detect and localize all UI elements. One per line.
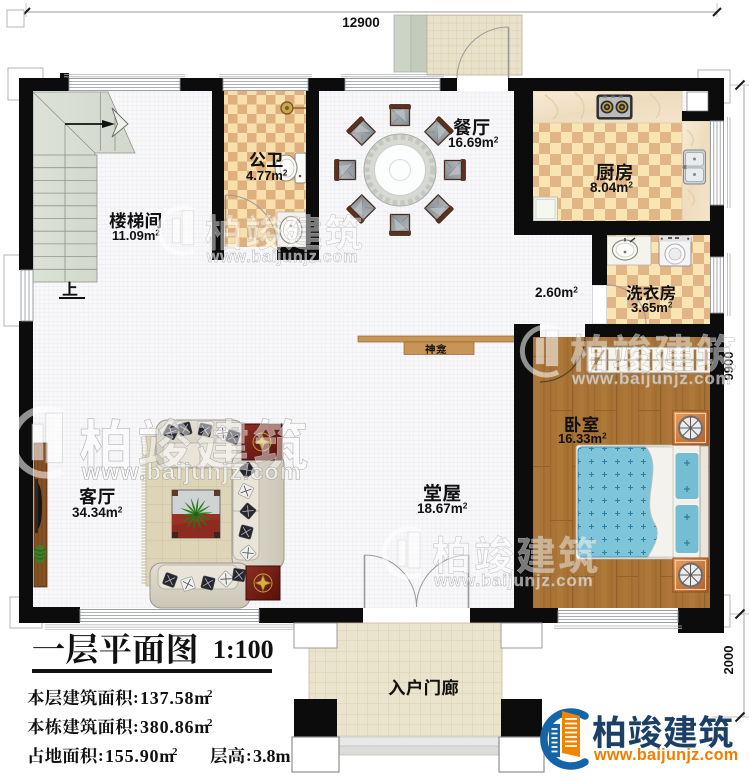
svg-text:2: 2 [207,688,213,700]
svg-text::: : [133,717,139,736]
svg-text:16.69m2: 16.69m2 [448,134,499,150]
svg-text:34.34m2: 34.34m2 [72,504,123,520]
svg-text::: : [246,746,252,765]
svg-text:18.67m2: 18.67m2 [417,500,468,516]
svg-text:11.09m2: 11.09m2 [112,228,160,243]
svg-text:1:100: 1:100 [213,635,274,664]
svg-text:137.58m: 137.58m [140,688,210,708]
svg-text:www.baijunjz.com: www.baijunjz.com [571,369,732,388]
svg-text:380.86m: 380.86m [140,717,210,737]
svg-text:www.baijunjz.com: www.baijunjz.com [81,458,302,484]
svg-text:www.baijunjz.com: www.baijunjz.com [593,746,739,764]
svg-text:2: 2 [207,717,213,729]
svg-text:8.04m2: 8.04m2 [590,179,633,195]
svg-text:2: 2 [172,746,178,758]
svg-text:www.baijunjz.com: www.baijunjz.com [433,571,594,590]
svg-text:16.33m2: 16.33m2 [558,431,607,446]
svg-text:3.65m2: 3.65m2 [631,300,673,315]
svg-text::: : [98,746,104,765]
svg-text:2.60m2: 2.60m2 [535,284,578,300]
svg-text:2000: 2000 [721,646,736,675]
svg-text:12900: 12900 [342,15,380,30]
svg-text:www.baijunjz.com: www.baijunjz.com [206,248,358,266]
svg-text:155.90m: 155.90m [105,746,175,766]
svg-text:4.77m2: 4.77m2 [246,168,288,183]
svg-text::: : [133,688,139,707]
svg-text:3.8m: 3.8m [253,746,291,766]
